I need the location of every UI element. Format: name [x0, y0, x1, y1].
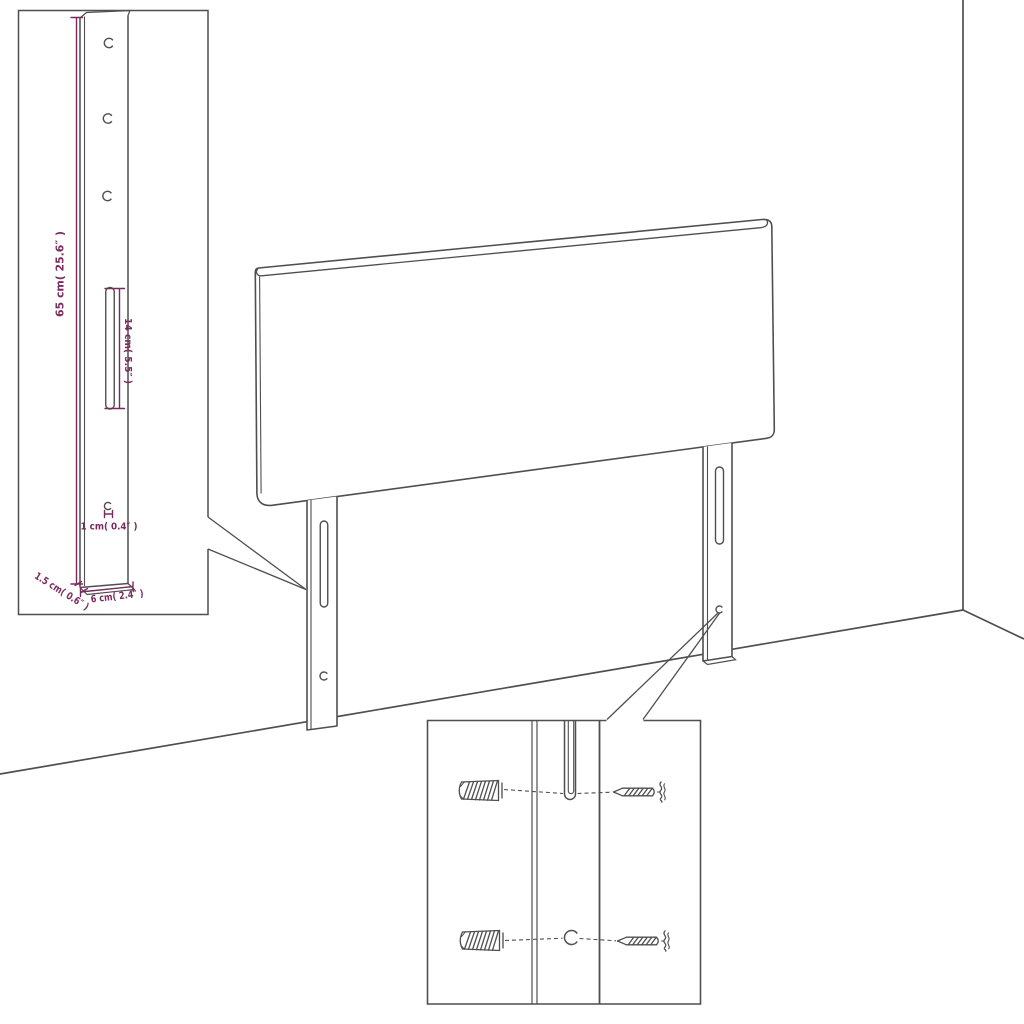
dimension-hole-label: 1 cm( 0.4″ )	[81, 522, 138, 533]
screw-hole-icon	[103, 191, 112, 200]
headboard-front-face	[255, 219, 774, 505]
screw-hole-icon	[564, 931, 577, 945]
screw-hole-icon	[104, 38, 113, 47]
diagram-canvas: 65 cm( 25.6″ ) 14 cm( 5.5″ ) 1 cm( 0.4″ …	[0, 0, 1024, 1024]
headboard-dimension-diagram: 65 cm( 25.6″ ) 14 cm( 5.5″ ) 1 cm( 0.4″ …	[0, 0, 1024, 1024]
hardware-detail-inset	[428, 613, 720, 1004]
screw-hole-icon	[103, 114, 112, 123]
dimension-height-label: 65 cm( 25.6″ )	[54, 231, 67, 317]
bracket-drawing	[80, 11, 135, 595]
mounting-slot-inner-line	[568, 721, 573, 794]
leg-strip-closeup	[532, 721, 600, 1005]
floor-line-left	[0, 610, 963, 774]
strip-left-edge-lines	[532, 721, 537, 1005]
screw-icon	[614, 782, 666, 802]
mounting-slot-icon	[106, 288, 115, 410]
height-dimension-line	[71, 18, 83, 585]
headboard-left-leg	[307, 497, 337, 731]
wall-plug-icon	[459, 781, 502, 801]
bracket-bottom-edge	[80, 584, 128, 588]
screw-hole-icon	[104, 502, 111, 509]
screw-icon	[618, 931, 670, 951]
hole-dimension-mark	[105, 511, 113, 518]
dimension-slot-label: 14 cm( 5.5″ )	[122, 318, 133, 384]
dimension-width-label: 6 cm( 2.4″ )	[90, 589, 144, 606]
bracket-detail-callout	[208, 517, 306, 590]
wall-plug-icon	[460, 931, 503, 951]
headboard	[255, 219, 774, 505]
floor-line-right	[963, 610, 1024, 639]
bracket-top-bevel	[80, 11, 130, 19]
headboard-right-leg	[703, 443, 736, 665]
